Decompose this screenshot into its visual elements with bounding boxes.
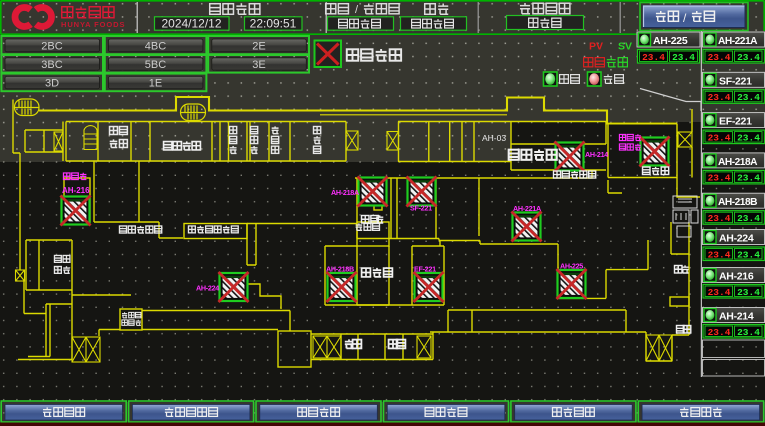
svg-text:2BC: 2BC [41,41,62,53]
svg-text:AH-224: AH-224 [719,233,754,245]
svg-text:SF-221: SF-221 [410,204,432,213]
svg-text:AH-214: AH-214 [719,311,754,323]
svg-text:AH-216: AH-216 [62,186,90,195]
svg-text:EF-221: EF-221 [719,116,752,128]
svg-text:22:09:51: 22:09:51 [250,17,297,31]
svg-text:AH-225: AH-225 [560,262,583,271]
svg-text:3BC: 3BC [41,59,62,71]
svg-text:23.4: 23.4 [737,249,760,260]
svg-text:PV: PV [589,41,603,53]
svg-text:23.4: 23.4 [672,52,695,63]
svg-text:3D: 3D [45,78,59,90]
svg-text:AH-216: AH-216 [719,271,754,283]
svg-text:23.4: 23.4 [737,92,760,103]
svg-text:AH-218A: AH-218A [718,157,758,168]
svg-text:AH-225: AH-225 [653,35,688,47]
svg-text:AH-218B: AH-218B [718,197,757,208]
svg-text:23.4: 23.4 [737,213,760,224]
svg-text:23.4: 23.4 [708,92,731,103]
svg-text:23.4: 23.4 [708,173,731,184]
svg-text:23.4: 23.4 [737,132,760,143]
svg-text:23.4: 23.4 [642,52,665,63]
svg-text:3E: 3E [252,59,265,71]
svg-text:23.4: 23.4 [737,287,760,298]
svg-text:23.4: 23.4 [708,327,731,338]
svg-text:AH-218A: AH-218A [331,188,359,197]
svg-text:AH-221A: AH-221A [718,36,758,47]
svg-text:23.4: 23.4 [708,132,731,143]
svg-text:23.4: 23.4 [737,173,760,184]
svg-text:EF-221: EF-221 [414,265,436,274]
svg-text:AH-214: AH-214 [585,150,608,159]
svg-text:23.4: 23.4 [708,249,731,260]
svg-text:2E: 2E [252,41,265,53]
svg-text:HUNYA FOODS: HUNYA FOODS [61,20,125,29]
svg-text:23.4: 23.4 [708,213,731,224]
svg-text:SV: SV [618,41,632,53]
svg-text:AH-221A: AH-221A [513,204,541,213]
svg-text:5BC: 5BC [145,59,166,71]
svg-text:SF-221: SF-221 [719,75,752,87]
svg-text:4BC: 4BC [145,41,166,53]
svg-text:AH-218B: AH-218B [326,265,354,274]
svg-text:AH-224: AH-224 [196,284,219,293]
svg-text:23.4: 23.4 [737,327,760,338]
svg-text:23.4: 23.4 [708,287,731,298]
svg-text:1E: 1E [149,78,162,90]
svg-text:AH-03: AH-03 [482,133,506,143]
svg-text:2024/12/12: 2024/12/12 [161,17,221,31]
svg-text:23.4: 23.4 [737,52,760,63]
svg-text:23.4: 23.4 [708,52,731,63]
